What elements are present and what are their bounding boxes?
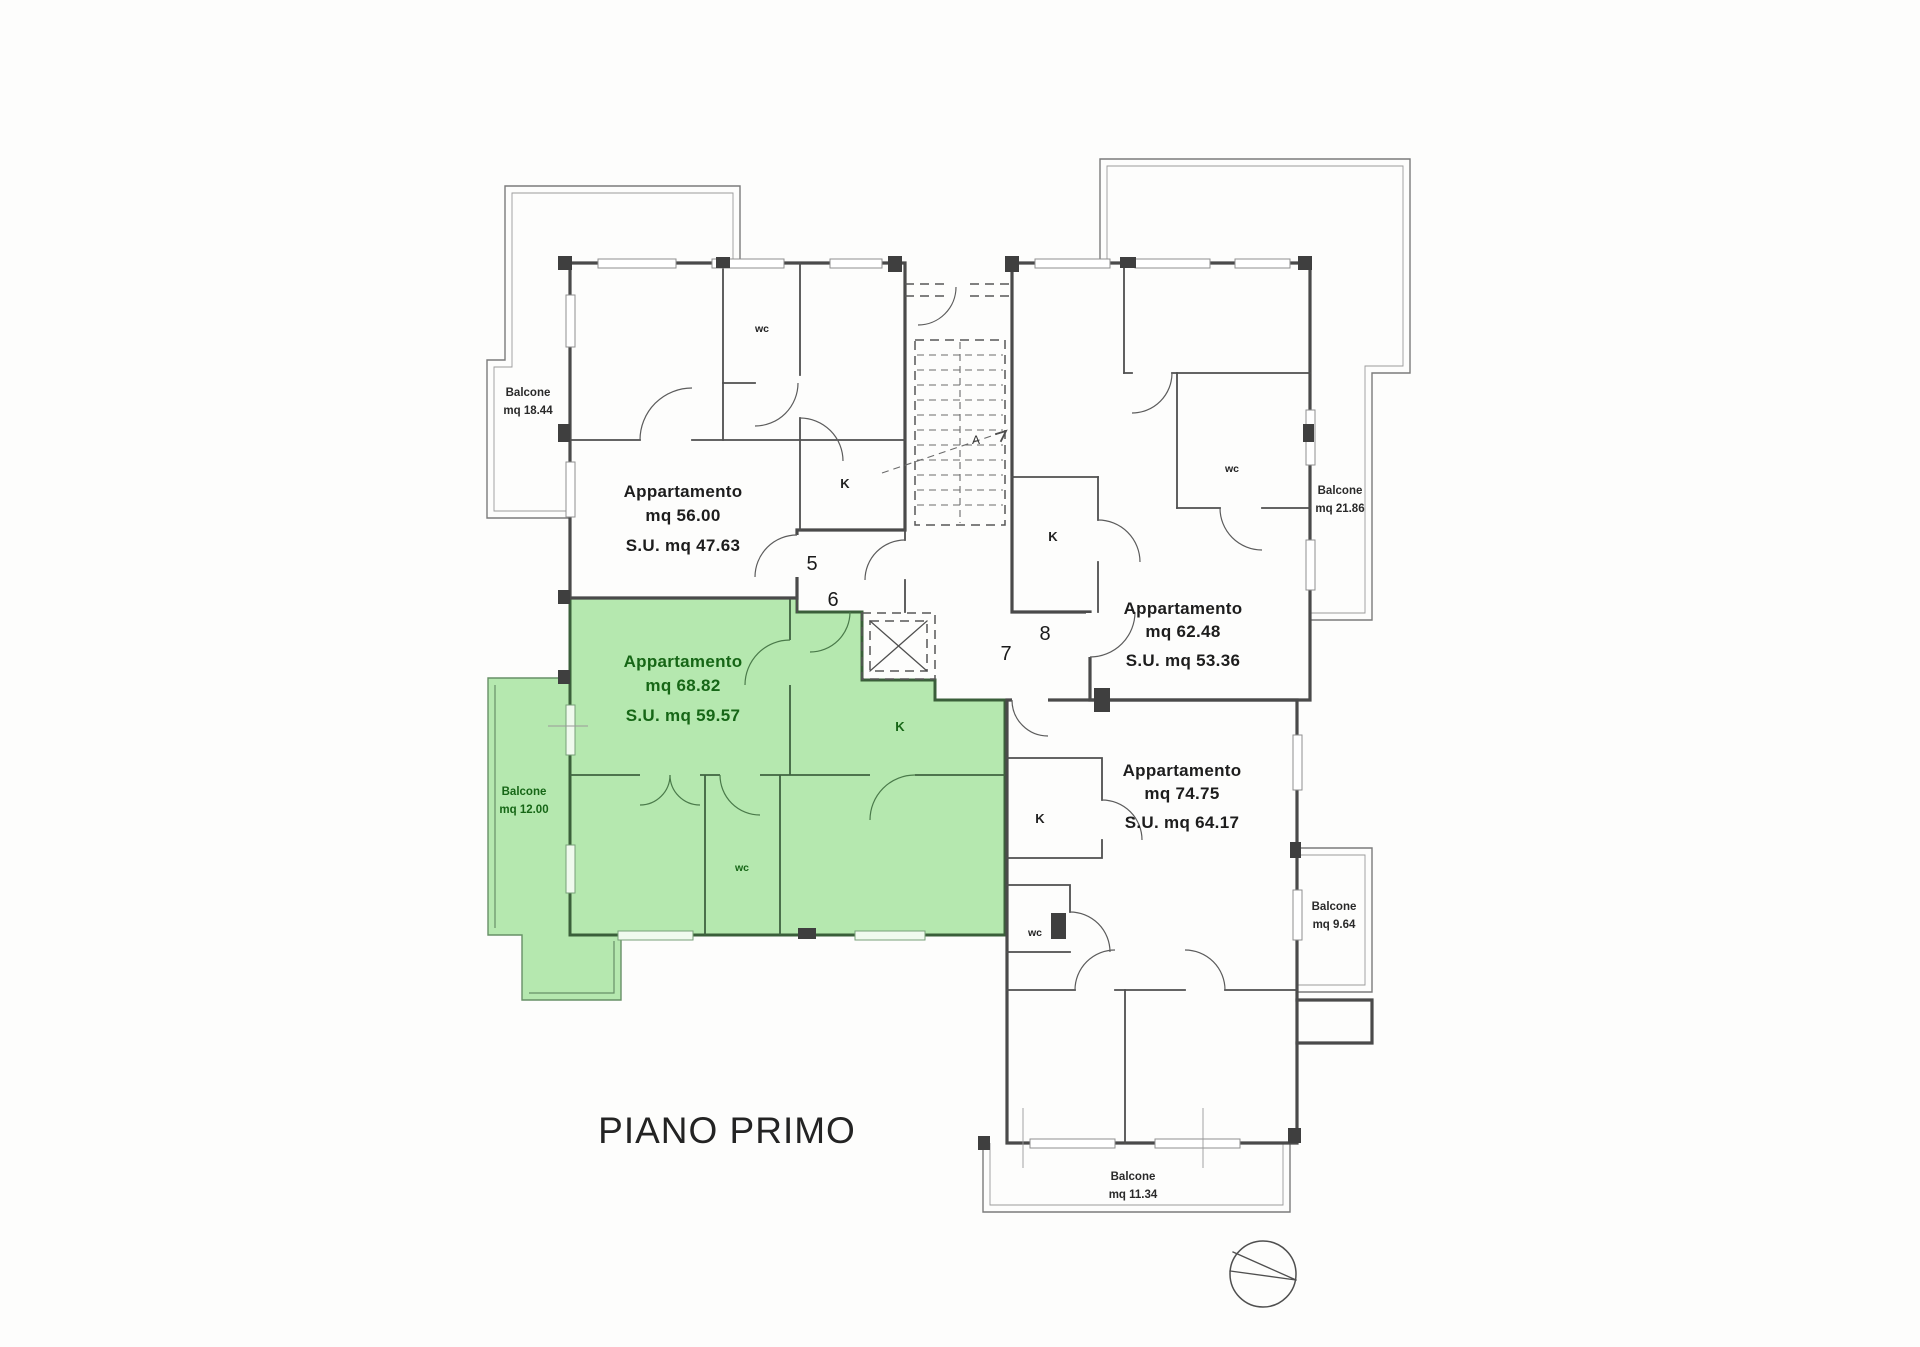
north-compass-icon (1230, 1241, 1296, 1307)
apartment-62-name: Appartamento (1124, 599, 1243, 618)
landing-marker-6: 6 (827, 589, 838, 611)
apartment-74-wc-label: wc (1027, 927, 1042, 939)
balcony-11-34: Balcone mq 11.34 (983, 1143, 1290, 1212)
apartment-56-surface: S.U. mq 47.63 (626, 536, 740, 555)
balcony-21-86: Balcone mq 21.86 (1100, 159, 1410, 620)
apartment-56-name: Appartamento (624, 482, 743, 501)
apartment-74-name: Appartamento (1123, 761, 1242, 780)
apartment-68-wc-label: wc (734, 862, 749, 874)
apartment-62-surface: S.U. mq 53.36 (1126, 651, 1240, 670)
balcony-12-00-area: mq 12.00 (499, 804, 548, 816)
landing-marker-8: 8 (1039, 623, 1050, 645)
balcony-9-64-label: Balcone (1312, 901, 1357, 913)
balcony-11-34-label: Balcone (1111, 1171, 1156, 1183)
apartment-68-area: mq 68.82 (645, 676, 720, 695)
apartment-62-area: mq 62.48 (1145, 622, 1220, 641)
balcony-18-44-area: mq 18.44 (503, 405, 553, 417)
balcony-18-44: Balcone mq 18.44 (487, 186, 740, 518)
apartment-56-kitchen-label: K (840, 476, 850, 491)
balcony-9-64: Balcone mq 9.64 (1297, 848, 1372, 992)
apartment-56-wc-label: wc (754, 323, 769, 335)
floor-plan-drawing: Balcone mq 18.44 Balcone mq 21.86 Balcon… (0, 0, 1920, 1347)
apartment-68-highlighted: Appartamento mq 68.82 S.U. mq 59.57 K wc (570, 598, 1005, 935)
apartment-74-area: mq 74.75 (1144, 784, 1219, 803)
apartment-68-surface: S.U. mq 59.57 (626, 706, 740, 725)
balcony-18-44-label: Balcone (506, 387, 551, 399)
apartment-68-kitchen-label: K (895, 719, 905, 734)
page-title: PIANO PRIMO (598, 1110, 856, 1151)
apartment-68-name: Appartamento (624, 652, 743, 671)
apartment-56-area: mq 56.00 (645, 506, 720, 525)
stairwell: A (882, 340, 1006, 525)
balcony-21-86-label: Balcone (1318, 485, 1363, 497)
balcony-9-64-area: mq 9.64 (1313, 919, 1356, 931)
landing-marker-5: 5 (806, 553, 817, 575)
floor-plan-page: Balcone mq 18.44 Balcone mq 21.86 Balcon… (0, 0, 1920, 1347)
apartment-74-kitchen-label: K (1035, 811, 1045, 826)
stair-section-label: A (972, 433, 980, 447)
apartment-74-surface: S.U. mq 64.17 (1125, 813, 1239, 832)
balcony-12-00-label: Balcone (502, 786, 547, 798)
balcony-21-86-area: mq 21.86 (1315, 503, 1364, 515)
apartment-62-kitchen-label: K (1048, 529, 1058, 544)
apartment-62-wc-label: wc (1224, 463, 1239, 475)
apartment-62: Appartamento mq 62.48 S.U. mq 53.36 wc K (1012, 263, 1310, 700)
apartment-56: Appartamento mq 56.00 S.U. mq 47.63 wc K (570, 263, 905, 612)
entrance-door (905, 284, 1012, 325)
elevator (862, 613, 935, 679)
balcony-11-34-area: mq 11.34 (1109, 1189, 1158, 1201)
landing-marker-7: 7 (1000, 643, 1011, 665)
